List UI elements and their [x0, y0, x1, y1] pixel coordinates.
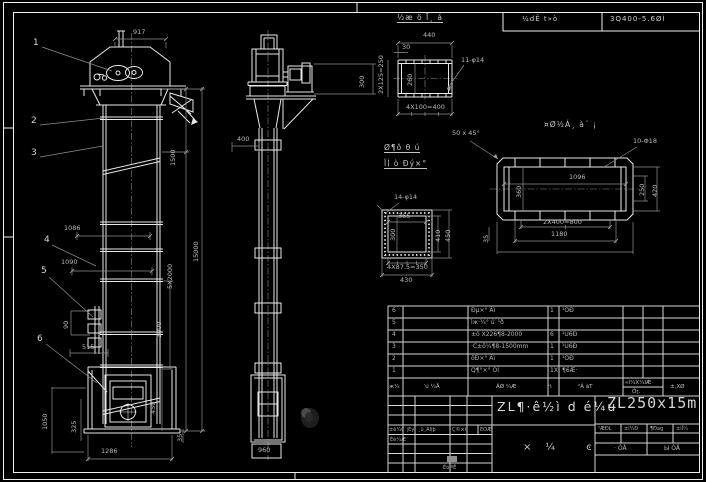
dim-365: 365 [398, 213, 410, 220]
rev-doc-label: ¸ü¸ÄÎļþ [418, 427, 449, 434]
dim-400: 400 [237, 136, 249, 143]
dim-917: 917 [133, 29, 145, 36]
cursor-smudge [301, 408, 319, 428]
parts-header-qty: ʶì [548, 384, 559, 390]
dim-1096: 1096 [569, 174, 586, 181]
header-right-cell: 3Q400-5.6ØÌ [610, 16, 666, 23]
parts-row-mat: ¹Ü6Ð [562, 344, 577, 350]
rev-sign-label: Ç©×Ö [452, 427, 466, 434]
balloon-1: 1 [33, 40, 39, 47]
balloon-5: 5 [41, 268, 47, 275]
parts-row-no: 5 [392, 320, 396, 326]
dim-260: 260 [407, 74, 414, 86]
dim-3000: 3000 [156, 321, 163, 338]
dim-2x400: 2X400=800 [543, 219, 582, 226]
note-14-phi14: 14-φ14 [394, 194, 417, 201]
parts-row-mat: ¹Ü6Ð [562, 332, 577, 338]
parts-row-no: 4 [392, 332, 396, 338]
side-elevation-view [246, 35, 316, 458]
dim-360: 360 [516, 186, 523, 198]
note-11-phi14: 11-φ14 [461, 57, 484, 64]
dim-410: 410 [435, 230, 442, 242]
left-elevation-view [80, 31, 195, 433]
parts-row-qty: 1X [550, 368, 558, 374]
parts-header-no: ж¼ [389, 384, 399, 390]
parts-row-no: 6 [392, 308, 396, 314]
drawing-title: ZL¶·ê½ì d é¼ú [497, 403, 617, 410]
parts-header-code: ′ú ¼Å [424, 384, 440, 390]
rev-mark-label: ±ê¼Ç [389, 427, 403, 434]
parts-header-note: ±,XØ [670, 384, 684, 390]
parts-header-weight: «Ì¼X¼ÌÆ [625, 380, 663, 386]
detail-top-title: ½æ ö Ī¸ á [397, 14, 443, 23]
parts-row-qty: 1 [550, 356, 554, 362]
channel-title: ¤Ø½Á¸ à´ ¡ [544, 121, 597, 128]
designer-label: Éè¼Æ [390, 437, 406, 444]
info-cell: ±ì¼Ð [624, 426, 638, 433]
checker-label: Éó ºË [443, 465, 456, 472]
dim-5x2000: 5X2000 [167, 264, 174, 289]
parts-row-name: ôÐ×° Áì [471, 356, 495, 362]
drawing-type-label: ×¼ ͼ [523, 444, 606, 451]
leader-arrow-2 [493, 154, 498, 159]
info-cell: ¹ÆÐL [598, 426, 612, 433]
dim-300-square: 300 [390, 229, 397, 241]
sheet-no-left: · ÓÅ [614, 446, 627, 452]
parts-row-mat: ¹ÖÐ [562, 356, 574, 362]
balloon-4: 4 [44, 237, 50, 244]
parts-row-name: ±ô X226¶8-2000 [471, 332, 522, 338]
parts-header-name: ÃØ ¼Æ [496, 384, 517, 390]
square-title-2: ÏÌ ò Ðý×° [384, 160, 427, 169]
parts-row-qty: 6 [550, 332, 554, 338]
dim-35-left: 35 [177, 434, 184, 442]
drawing-model: ZL250x15m [607, 400, 697, 407]
note-10-phi18: 10-Φ18 [633, 138, 657, 145]
dim-1286: 1286 [101, 448, 118, 455]
dim-90: 90 [63, 321, 70, 329]
note-chamfer: 50 x 45° [452, 130, 480, 137]
dim-960: 960 [258, 447, 270, 454]
balloon-6: 6 [37, 336, 43, 343]
dim-35-channel: 35 [483, 235, 490, 243]
dim-1050: 1050 [42, 413, 49, 430]
dim-1180: 1180 [551, 231, 568, 238]
parts-row-name: Q¶°×° ÓÌ [471, 368, 499, 374]
dim-4x875: 4X87.5=350 [387, 264, 428, 271]
dim-430: 430 [400, 277, 412, 284]
balloon-2: 2 [31, 118, 37, 125]
rev-count-label: ´¦Êý [404, 427, 415, 434]
dim-2x125: 2X125=250 [378, 55, 385, 94]
dim-30: 30 [402, 44, 410, 51]
dimension-lines [40, 39, 660, 461]
dim-15000: 15000 [193, 241, 200, 262]
info-cell: ±ìÎ¼ [676, 426, 688, 433]
info-cell: ¶Ðag [650, 426, 663, 433]
parts-row-name: ìж·¼° ú′ ¹ð [471, 320, 504, 326]
dim-515: 515 [82, 344, 94, 351]
dim-4x100: 4X100=400 [406, 104, 445, 111]
cad-drawing-canvas[interactable]: ¼dÊ t»ò 3Q400-5.6ØÌ 1 2 3 4 5 6 917 1500… [0, 0, 706, 482]
dim-1500: 1500 [170, 149, 177, 166]
parts-row-mat: ¶6Æ· [562, 368, 577, 374]
dim-450: 450 [150, 402, 157, 414]
dim-1086: 1086 [64, 225, 81, 232]
parts-row-name: Ðµ×° Áì [471, 308, 495, 314]
dim-325: 325 [71, 421, 78, 433]
dim-440: 440 [423, 32, 435, 39]
dim-1090: 1090 [61, 259, 78, 266]
parts-row-qty: 1 [550, 344, 554, 350]
dim-250: 250 [639, 184, 646, 196]
parts-row-qty: 1 [550, 308, 554, 314]
parts-header-mat: ²Á àT [578, 384, 592, 390]
sheet-no-right: Ы ÓÅ [664, 446, 680, 452]
parts-row-no: 3 [392, 344, 396, 350]
rev-date-label: ÈÕÆÚ [480, 427, 492, 434]
parts-row-no: 2 [392, 356, 396, 362]
header-left-cell: ¼dÊ t»ò [522, 16, 558, 23]
highlighted-cell [447, 456, 457, 462]
parts-row-name: ·C±ô¼¶8-1500mm [471, 344, 528, 350]
parts-row-no: 1 [392, 368, 396, 374]
parts-row-mat: ¹ÖÐ [562, 308, 574, 314]
balloon-3: 3 [31, 150, 37, 157]
square-title-1: Ø¶ô θ ú [384, 144, 420, 153]
dim-420: 420 [652, 185, 659, 197]
dim-300: 300 [359, 76, 366, 88]
dim-450-square: 450 [445, 230, 452, 242]
